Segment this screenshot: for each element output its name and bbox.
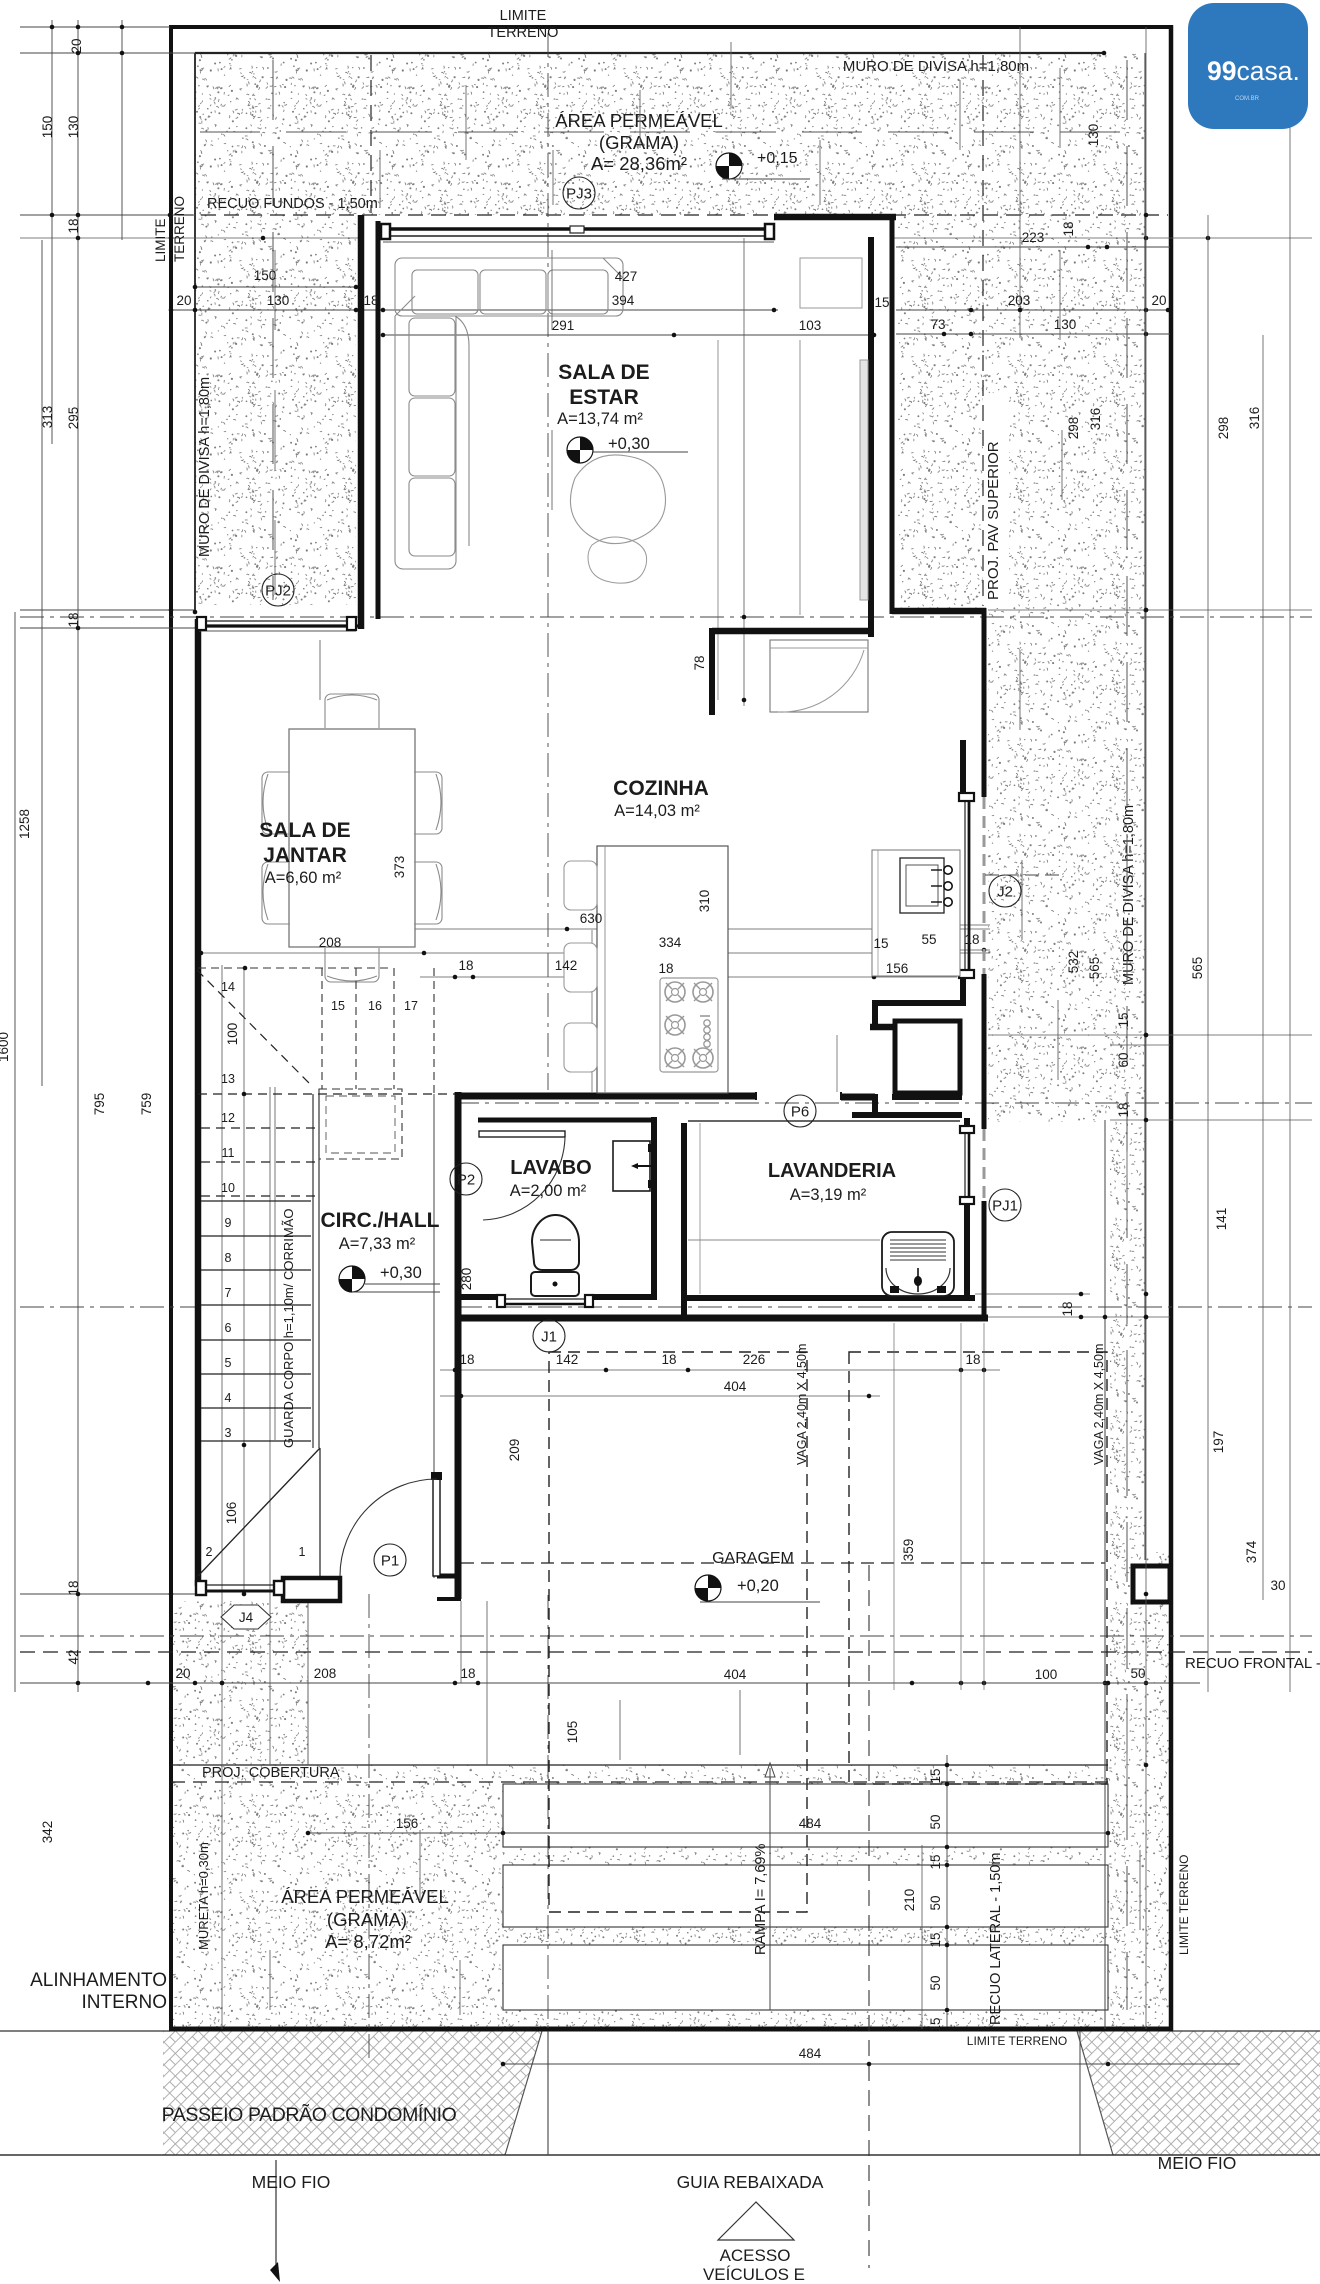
svg-text:+0,30: +0,30	[608, 435, 650, 453]
svg-text:404: 404	[724, 1379, 747, 1394]
svg-text:208: 208	[314, 1666, 337, 1681]
svg-text:298: 298	[1216, 417, 1231, 440]
svg-text:4: 4	[225, 1391, 232, 1405]
svg-text:373: 373	[392, 856, 407, 879]
svg-text:18: 18	[1060, 1301, 1075, 1316]
svg-text:P2: P2	[457, 1171, 475, 1188]
svg-text:197: 197	[1211, 1431, 1226, 1454]
svg-text:532: 532	[1066, 951, 1081, 974]
svg-text:150: 150	[254, 268, 277, 283]
svg-text:100: 100	[225, 1023, 240, 1046]
svg-text:13: 13	[221, 1072, 235, 1086]
svg-text:15: 15	[331, 999, 345, 1013]
svg-text:RAMPA I= 7,69%: RAMPA I= 7,69%	[753, 1844, 769, 1955]
svg-text:MURO DE DIVISA h=1,80m: MURO DE DIVISA h=1,80m	[843, 58, 1029, 75]
svg-text:759: 759	[139, 1093, 154, 1116]
svg-text:RECUO FUNDOS - 1,50m: RECUO FUNDOS - 1,50m	[207, 196, 378, 212]
svg-text:PROJ. COBERTURA: PROJ. COBERTURA	[202, 1765, 340, 1781]
svg-text:18: 18	[66, 1580, 81, 1595]
svg-text:ESTAR: ESTAR	[569, 386, 639, 409]
svg-text:CIRC./HALL: CIRC./HALL	[321, 1209, 440, 1232]
svg-text:18: 18	[363, 293, 378, 308]
svg-text:(GRAMA): (GRAMA)	[327, 1909, 407, 1930]
svg-text:2: 2	[206, 1545, 213, 1559]
svg-text:INTERNO: INTERNO	[82, 1992, 168, 2013]
svg-text:15: 15	[874, 295, 889, 310]
svg-text:42: 42	[66, 1649, 81, 1664]
svg-text:484: 484	[799, 1816, 822, 1831]
svg-text:LAVANDERIA: LAVANDERIA	[768, 1160, 896, 1182]
svg-text:209: 209	[507, 1439, 522, 1462]
svg-text:156: 156	[396, 1816, 419, 1831]
svg-text:103: 103	[799, 318, 822, 333]
svg-text:106: 106	[224, 1502, 239, 1525]
svg-text:210: 210	[902, 1889, 917, 1912]
svg-text:PJ3: PJ3	[566, 185, 592, 202]
svg-text:142: 142	[556, 1352, 579, 1367]
svg-text:130: 130	[1086, 124, 1101, 147]
svg-text:P6: P6	[791, 1103, 809, 1120]
svg-text:LIMITE TERRENO: LIMITE TERRENO	[967, 2034, 1067, 2048]
svg-text:11: 11	[222, 1146, 235, 1160]
svg-text:6: 6	[225, 1321, 232, 1335]
svg-text:GUIA REBAIXADA: GUIA REBAIXADA	[677, 2172, 824, 2192]
svg-text:RECUO FRONTAL -: RECUO FRONTAL -	[1185, 1655, 1320, 1672]
svg-text:630: 630	[580, 911, 603, 926]
svg-text:223: 223	[1022, 230, 1045, 245]
svg-text:18: 18	[458, 958, 473, 973]
svg-text:99casa.: 99casa.	[1207, 56, 1300, 86]
svg-text:73: 73	[930, 317, 945, 332]
svg-text:150: 150	[40, 116, 55, 139]
svg-text:MURETA h=0,30m: MURETA h=0,30m	[196, 1842, 211, 1950]
svg-text:18: 18	[658, 961, 673, 976]
svg-text:ACESSO: ACESSO	[720, 2246, 791, 2265]
svg-text:130: 130	[267, 293, 290, 308]
svg-text:291: 291	[552, 318, 575, 333]
svg-text:208: 208	[319, 935, 342, 950]
svg-text:TERRENO: TERRENO	[172, 196, 187, 262]
svg-text:20: 20	[176, 293, 191, 308]
svg-text:14: 14	[221, 980, 235, 994]
svg-text:203: 203	[1008, 293, 1031, 308]
svg-text:15: 15	[928, 1932, 943, 1947]
svg-text:142: 142	[555, 958, 578, 973]
svg-text:55: 55	[921, 932, 936, 947]
svg-text:78: 78	[692, 655, 707, 670]
svg-text:280: 280	[459, 1268, 474, 1291]
svg-text:374: 374	[1244, 1540, 1259, 1563]
svg-text:50: 50	[928, 1814, 943, 1829]
svg-text:SALA DE: SALA DE	[558, 361, 649, 384]
svg-text:18: 18	[965, 1352, 980, 1367]
svg-text:156: 156	[886, 961, 909, 976]
svg-text:15: 15	[928, 2017, 943, 2032]
svg-text:A=7,33 m²: A=7,33 m²	[339, 1235, 416, 1253]
svg-text:1: 1	[299, 1545, 306, 1559]
svg-text:15: 15	[928, 1768, 943, 1783]
svg-text:J2: J2	[997, 883, 1013, 900]
svg-text:565: 565	[1190, 957, 1205, 980]
svg-text:+0,30: +0,30	[380, 1264, 422, 1282]
svg-text:226: 226	[743, 1352, 766, 1367]
svg-text:ÁREA PERMEÁVEL: ÁREA PERMEÁVEL	[281, 1886, 449, 1907]
svg-text:298: 298	[1066, 417, 1081, 440]
svg-text:18: 18	[1116, 1102, 1131, 1117]
svg-text:SALA DE: SALA DE	[259, 819, 350, 842]
svg-text:GUARDA CORPO h=1,10m/ CORRIMÃO: GUARDA CORPO h=1,10m/ CORRIMÃO	[281, 1209, 296, 1448]
svg-text:A=14,03 m²: A=14,03 m²	[614, 802, 700, 820]
svg-text:18: 18	[66, 612, 81, 627]
svg-text:130: 130	[1054, 317, 1077, 332]
svg-text:334: 334	[659, 935, 682, 950]
svg-text:COM.BR: COM.BR	[1235, 96, 1260, 102]
svg-text:1600: 1600	[0, 1032, 11, 1062]
svg-text:313: 313	[40, 406, 55, 429]
svg-text:316: 316	[1247, 407, 1262, 430]
svg-text:12: 12	[221, 1111, 235, 1125]
svg-text:+0,20: +0,20	[737, 1577, 779, 1595]
svg-text:VAGA 2,40m X 4,50m: VAGA 2,40m X 4,50m	[1092, 1344, 1106, 1465]
svg-text:PJ2: PJ2	[265, 582, 291, 599]
svg-text:LIMITE TERRENO: LIMITE TERRENO	[1177, 1855, 1191, 1955]
svg-text:295: 295	[66, 407, 81, 430]
svg-text:100: 100	[1035, 1667, 1058, 1682]
svg-text:8: 8	[225, 1251, 232, 1265]
svg-text:VAGA 2,40m X 4,50m: VAGA 2,40m X 4,50m	[795, 1344, 809, 1465]
svg-text:16: 16	[368, 999, 382, 1013]
svg-text:LAVABO: LAVABO	[510, 1157, 591, 1179]
svg-text:18: 18	[964, 932, 979, 947]
svg-text:10: 10	[221, 1181, 235, 1195]
svg-text:18: 18	[66, 218, 81, 233]
svg-text:P1: P1	[381, 1552, 399, 1569]
svg-text:484: 484	[799, 2046, 822, 2061]
svg-text:18: 18	[661, 1352, 676, 1367]
svg-text:A=13,74 m²: A=13,74 m²	[557, 410, 643, 428]
svg-text:60: 60	[1116, 1052, 1131, 1067]
svg-text:MURO DE DIVISA h=1,80m: MURO DE DIVISA h=1,80m	[197, 377, 213, 557]
svg-text:17: 17	[404, 999, 418, 1013]
svg-text:MEIO FIO: MEIO FIO	[1158, 2153, 1237, 2173]
svg-text:20: 20	[175, 1666, 190, 1681]
svg-text:50: 50	[1130, 1666, 1145, 1681]
svg-text:ÁREA PERMEÁVEL: ÁREA PERMEÁVEL	[555, 110, 723, 131]
svg-text:A=3,19 m²: A=3,19 m²	[790, 1186, 867, 1204]
svg-text:18: 18	[460, 1666, 475, 1681]
svg-text:359: 359	[901, 1539, 916, 1562]
svg-text:3: 3	[225, 1426, 232, 1440]
svg-text:MURO DE DIVISA h=1,80m: MURO DE DIVISA h=1,80m	[1121, 805, 1137, 985]
svg-text:ALINHAMENTO: ALINHAMENTO	[30, 1970, 167, 1991]
svg-text:J4: J4	[239, 1610, 254, 1625]
svg-text:20: 20	[69, 38, 84, 53]
svg-text:COZINHA: COZINHA	[613, 777, 709, 800]
svg-text:(GRAMA): (GRAMA)	[599, 132, 679, 153]
svg-text:15: 15	[928, 1854, 943, 1869]
svg-text:20: 20	[1151, 293, 1166, 308]
svg-text:310: 310	[697, 890, 712, 913]
svg-text:LIMITE: LIMITE	[153, 218, 168, 262]
svg-text:427: 427	[615, 269, 638, 284]
svg-text:A= 8,72m²: A= 8,72m²	[325, 1931, 411, 1952]
svg-text:50: 50	[928, 1895, 943, 1910]
svg-text:GARAGEM: GARAGEM	[712, 1550, 794, 1567]
svg-text:9: 9	[225, 1216, 232, 1230]
svg-text:RECUO LATERAL - 1,50m: RECUO LATERAL - 1,50m	[988, 1853, 1004, 2025]
svg-text:795: 795	[92, 1093, 107, 1116]
svg-text:394: 394	[612, 293, 635, 308]
svg-text:LIMITE: LIMITE	[500, 8, 547, 24]
svg-text:MEIO FIO: MEIO FIO	[252, 2172, 331, 2192]
svg-text:50: 50	[928, 1975, 943, 1990]
svg-text:PROJ. PAV SUPERIOR: PROJ. PAV SUPERIOR	[985, 441, 1002, 600]
svg-text:316: 316	[1088, 408, 1103, 431]
svg-text:J1: J1	[541, 1328, 557, 1345]
svg-text:7: 7	[225, 1286, 232, 1300]
svg-text:A= 28,36m²: A= 28,36m²	[591, 153, 687, 174]
svg-text:130: 130	[66, 116, 81, 139]
svg-text:PASSEIO PADRÃO CONDOMÍNIO: PASSEIO PADRÃO CONDOMÍNIO	[162, 2102, 457, 2126]
svg-text:TERRENO: TERRENO	[488, 25, 559, 41]
svg-text:342: 342	[40, 1821, 55, 1844]
svg-text:565: 565	[1087, 957, 1102, 980]
svg-text:141: 141	[1214, 1208, 1229, 1231]
svg-text:1258: 1258	[17, 809, 32, 839]
svg-text:A=6,60 m²: A=6,60 m²	[265, 869, 342, 887]
svg-text:30: 30	[1270, 1578, 1285, 1593]
svg-text:+0,15: +0,15	[757, 150, 798, 167]
svg-text:PJ1: PJ1	[992, 1197, 1018, 1214]
svg-text:105: 105	[565, 1721, 580, 1744]
svg-text:A=2,00 m²: A=2,00 m²	[510, 1182, 587, 1200]
svg-text:15: 15	[873, 936, 888, 951]
svg-text:404: 404	[724, 1667, 747, 1682]
svg-text:15: 15	[1116, 1012, 1131, 1027]
svg-text:18: 18	[1061, 221, 1076, 236]
svg-text:5: 5	[225, 1356, 232, 1370]
svg-text:JANTAR: JANTAR	[263, 844, 347, 867]
svg-text:18: 18	[459, 1352, 474, 1367]
